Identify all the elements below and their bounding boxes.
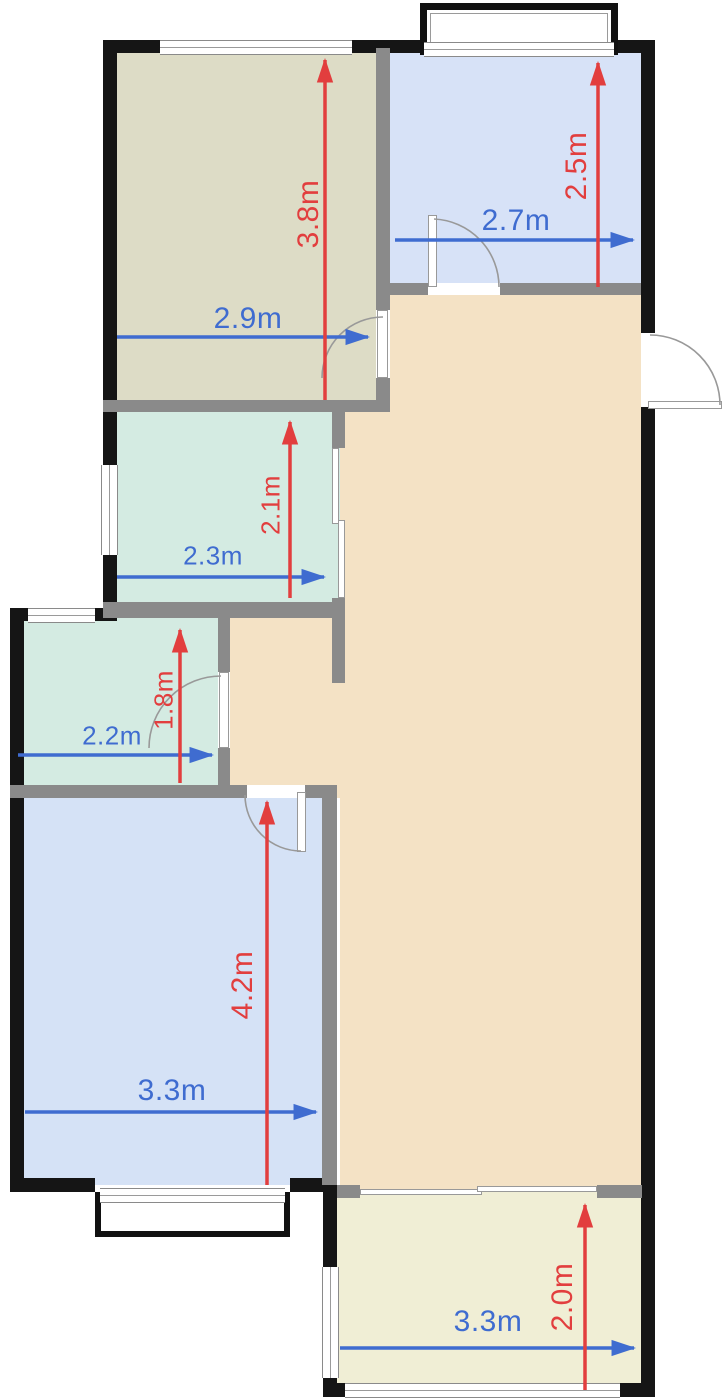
dim-label-depth-bottom-right: 2.0m bbox=[546, 1263, 580, 1332]
dim-label-width-bottom-left: 3.3m bbox=[138, 1074, 207, 1108]
dim-label-width-small-left: 2.2m bbox=[82, 721, 142, 752]
hall-upper bbox=[385, 285, 648, 415]
sliding-door-mid-left-panel-1 bbox=[332, 448, 339, 524]
dim-label-width-top-right: 2.7m bbox=[482, 204, 551, 238]
hall-corridor bbox=[225, 612, 345, 798]
wall-topleft-room-right-a bbox=[376, 48, 390, 310]
window-bottom-right-room-bottom bbox=[345, 1383, 620, 1398]
wall-hall-bottom-b bbox=[597, 1185, 642, 1198]
window-bottom-right-room-left bbox=[322, 1267, 339, 1378]
wall-hall-bottom-a bbox=[337, 1185, 360, 1198]
wall-br-bottom-a bbox=[323, 1383, 345, 1397]
wall-midleft-room-right-a bbox=[332, 408, 345, 448]
window-small-room bbox=[28, 608, 95, 623]
window-top-left-room bbox=[160, 40, 352, 55]
door-leaf-bottom-left-room bbox=[297, 792, 306, 852]
wall-midleft-room-right-b bbox=[332, 598, 345, 683]
window-balcony-top bbox=[424, 42, 614, 57]
wall-right-lower bbox=[641, 407, 655, 1397]
dim-label-depth-bottom-left: 4.2m bbox=[226, 951, 260, 1020]
door-leaf-small-room bbox=[219, 672, 229, 748]
wall-bottom-left-a bbox=[10, 1178, 95, 1192]
door-opening-top-right-room bbox=[428, 283, 500, 295]
wall-smallroom-top-a bbox=[10, 608, 28, 621]
wall-bottomleft-room-top-a bbox=[10, 785, 247, 798]
wall-topleft-room-bottom bbox=[103, 400, 390, 412]
window-balcony-bottom bbox=[100, 1188, 285, 1203]
door-leaf-entry bbox=[648, 401, 722, 409]
room-top-right bbox=[385, 48, 648, 290]
dim-label-width-bottom-right: 3.3m bbox=[454, 1305, 523, 1339]
door-leaf-top-left-room bbox=[377, 310, 388, 378]
window-mid-left-room bbox=[101, 465, 118, 555]
sliding-door-bottom-right-panel-2 bbox=[477, 1186, 597, 1192]
wall-smallroom-right-a bbox=[218, 612, 230, 672]
room-bottom-right bbox=[330, 1192, 648, 1390]
wall-top-left-a bbox=[103, 40, 160, 53]
sliding-door-bottom-right-panel-1 bbox=[360, 1189, 482, 1195]
sliding-door-mid-left-panel-2 bbox=[338, 520, 345, 598]
wall-br-left-top bbox=[323, 1192, 337, 1267]
wall-left-lower bbox=[10, 608, 24, 1192]
balcony-top-glazing bbox=[430, 13, 608, 45]
room-mid-left bbox=[110, 405, 340, 612]
room-small-left bbox=[20, 616, 225, 792]
door-arc-entry bbox=[650, 335, 720, 405]
door-leaf-top-right-room bbox=[428, 215, 437, 287]
dim-label-depth-top-right: 2.5m bbox=[560, 132, 594, 201]
room-top-left bbox=[110, 48, 385, 408]
hall-main bbox=[340, 405, 648, 1192]
wall-topleft-room-right-b bbox=[376, 378, 390, 403]
wall-right-upper bbox=[641, 40, 655, 333]
dim-label-depth-small-left: 1.8m bbox=[149, 670, 180, 730]
wall-topright-room-bottom-a bbox=[385, 283, 428, 295]
dim-label-width-top-left: 2.9m bbox=[214, 302, 283, 336]
dim-label-width-mid-left: 2.3m bbox=[183, 541, 243, 572]
wall-br-bottom-b bbox=[620, 1383, 655, 1397]
door-opening-entry bbox=[641, 333, 655, 407]
dim-label-depth-top-left: 3.8m bbox=[292, 180, 326, 249]
wall-top-right-a bbox=[385, 40, 420, 53]
room-bottom-left bbox=[20, 790, 330, 1185]
floor-plan: 2.9m 3.8m 2.7m 2.5m 2.3m 2.1m 2.2m 1.8m … bbox=[0, 0, 728, 1400]
wall-topright-room-bottom-b bbox=[500, 283, 641, 295]
wall-bottomleft-room-right bbox=[322, 785, 337, 1185]
dim-label-depth-mid-left: 2.1m bbox=[256, 475, 287, 535]
